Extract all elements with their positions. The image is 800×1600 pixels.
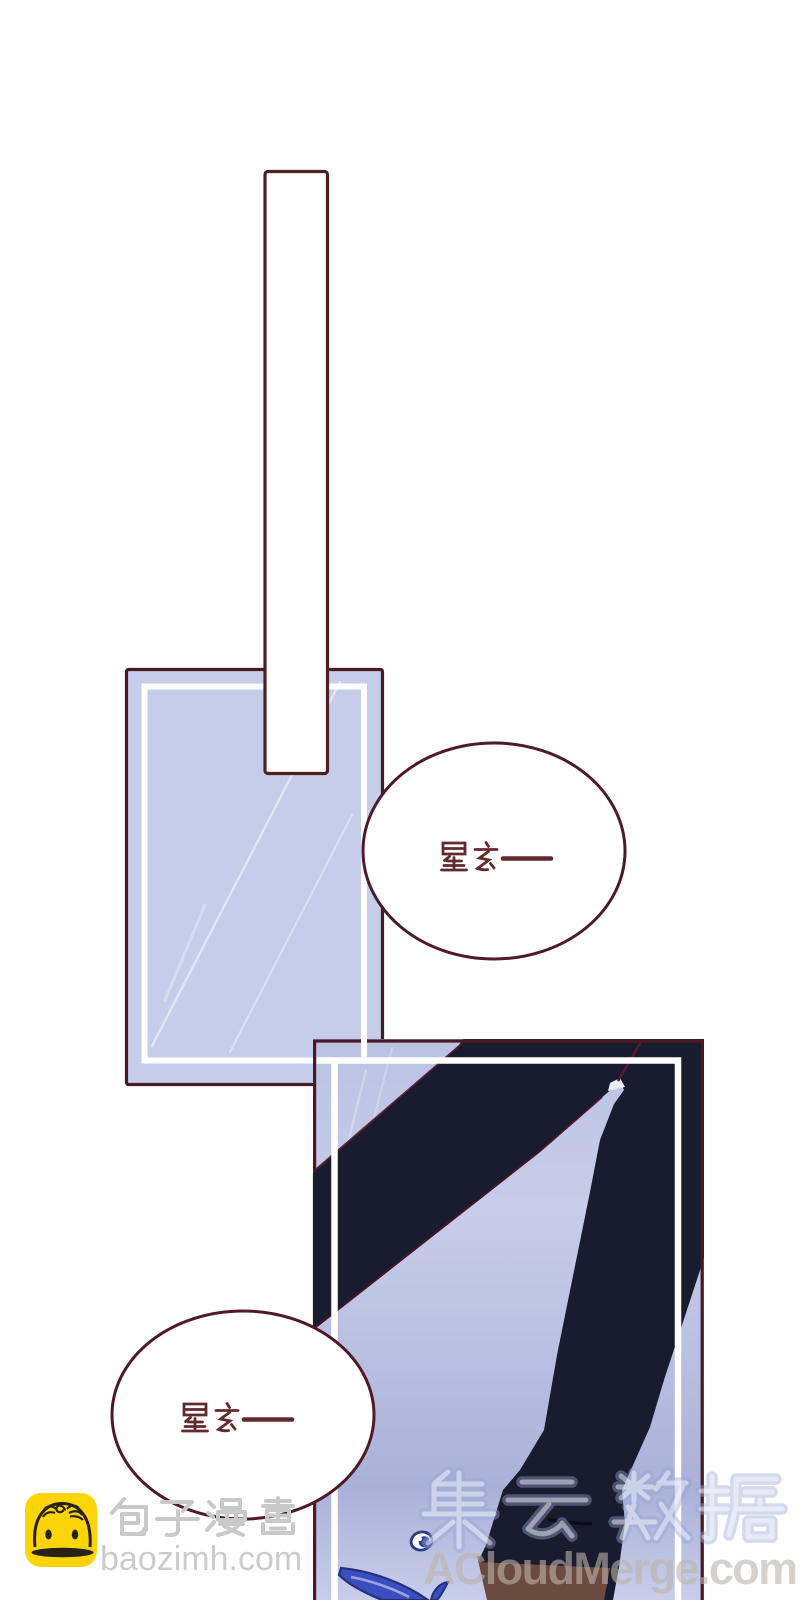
svg-text:baozimh.com: baozimh.com bbox=[100, 1540, 302, 1578]
svg-text:ACloudMerge.com: ACloudMerge.com bbox=[423, 1543, 797, 1594]
